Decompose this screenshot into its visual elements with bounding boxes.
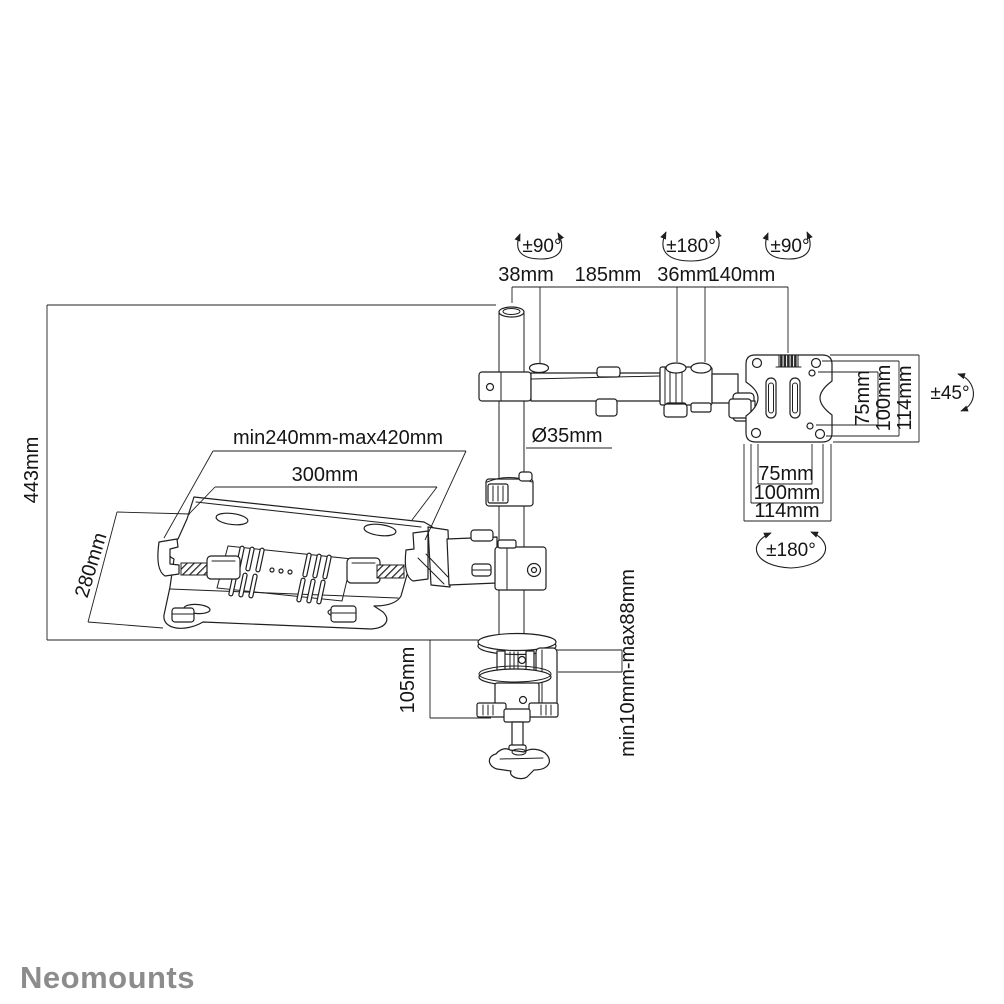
label-tray-range: min240mm-max420mm (233, 427, 443, 449)
label-vesa-h114: 114mm (754, 500, 819, 522)
clamp-bolt-head (530, 364, 549, 373)
label-140mm: 140mm (709, 264, 776, 286)
dim-top-chain: 38mm 185mm 36mm 140mm (498, 264, 788, 363)
vesa-hole (816, 430, 825, 439)
dim-desk-thickness: min10mm-max88mm (556, 569, 639, 757)
label-desk-thickness: min10mm-max88mm (617, 569, 639, 757)
technical-drawing-page: 38mm 185mm 36mm 140mm ±90° ±180° ±90° 44… (0, 0, 1004, 1004)
clamp-wing-knob (489, 749, 549, 779)
label-rot-elbow: ±180° (666, 236, 716, 257)
vesa-hole (812, 359, 821, 368)
vesa-hole (752, 429, 761, 438)
vesa-hole (809, 370, 815, 376)
vesa-hole (807, 423, 813, 429)
rotation-arc-vesa: ±180° (756, 532, 825, 568)
vesa-hole (753, 359, 762, 368)
vesa-plate (746, 355, 832, 442)
label-vesa-rotate: ±180° (766, 540, 816, 561)
upper-arm (479, 363, 755, 421)
elbow-bolt (666, 363, 686, 373)
dim-vesa-horizontal: 75mm 100mm 114mm (744, 444, 831, 522)
cable-clip (664, 404, 687, 417)
rotation-arc-screen: ±90° (766, 232, 810, 259)
vesa-thumbscrew (779, 355, 798, 367)
mount-arm-diagram: 38mm 185mm 36mm 140mm ±90° ±180° ±90° 44… (0, 0, 1004, 1004)
desk-clamp (477, 634, 558, 779)
neomounts-logo: Neomounts (20, 960, 195, 995)
rotation-arc-elbow: ±180° (663, 231, 719, 261)
tilt-arc: ±45° (930, 374, 973, 411)
label-rot-pole: ±90° (522, 236, 561, 257)
lower-arm (447, 530, 546, 590)
dim-pole-diameter: Ø35mm (526, 425, 612, 448)
pole-ring-collar (486, 472, 533, 506)
laptop-tray (158, 497, 450, 629)
cable-clip (597, 367, 620, 377)
elbow-bolt (691, 363, 711, 373)
label-443mm: 443mm (21, 437, 43, 504)
label-105mm: 105mm (397, 647, 419, 714)
label-280mm: 280mm (71, 530, 112, 600)
label-tilt: ±45° (930, 383, 969, 404)
label-36mm: 36mm (657, 264, 713, 286)
label-vesa-v100: 100mm (873, 365, 895, 432)
label-vesa-v75: 75mm (852, 370, 874, 426)
rotation-arc-pole: ±90° (518, 233, 562, 259)
clamp-screw-hole (519, 657, 526, 664)
label-pole-diameter: Ø35mm (531, 425, 602, 447)
label-vesa-v114: 114mm (894, 365, 916, 430)
cable-clip (596, 399, 617, 416)
label-300mm: 300mm (292, 464, 359, 486)
label-185mm: 185mm (575, 264, 642, 286)
label-rot-screen: ±90° (770, 236, 809, 257)
label-38mm: 38mm (498, 264, 554, 286)
